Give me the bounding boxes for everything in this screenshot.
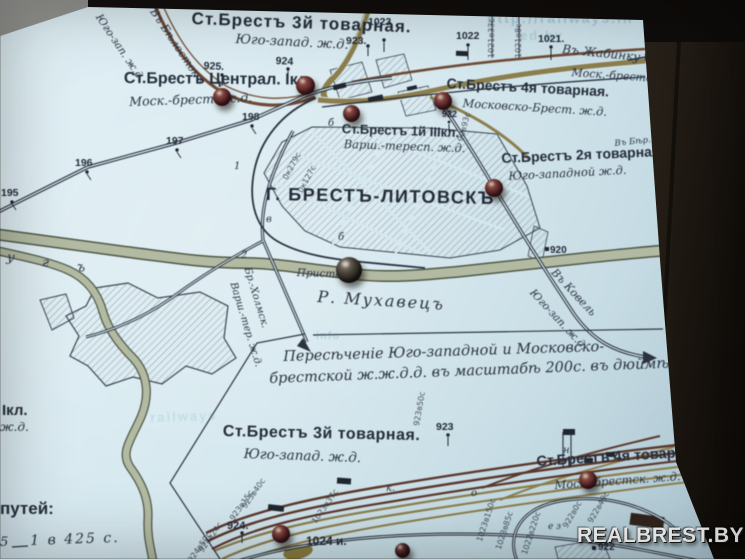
legend-class: Iкл. <box>2 402 28 419</box>
verstpost-922: 922 <box>442 109 457 119</box>
pushpin <box>434 92 452 110</box>
milepost-197: 197 <box>166 135 184 147</box>
verstpost-923-bottom: 923 <box>436 421 454 433</box>
pushpin-large <box>336 257 362 283</box>
verstpost-1021: 1021. <box>538 33 564 45</box>
letter-marker-k: к. <box>386 483 395 494</box>
letter-marker-v: в <box>266 214 272 225</box>
verstpost-920: 920 <box>550 245 567 256</box>
legend-scale: 1 в 425 с. <box>30 530 120 549</box>
verstpost-1022: 1022 <box>456 30 479 42</box>
pushpin <box>343 105 360 122</box>
site-watermark: REALBREST.BY <box>577 524 744 548</box>
verstpost-924-bottom: 924. <box>227 520 248 532</box>
pushpin <box>213 88 231 106</box>
pushpin <box>579 471 597 489</box>
historical-map: http://railways.in ed by info railways С… <box>0 0 745 559</box>
verstpost-1024-bottom: 1024 и. <box>306 534 347 548</box>
letter-marker-b: б <box>328 118 334 129</box>
verstpost-925: 925. <box>203 60 224 73</box>
legend-railway: ж.д. <box>0 420 29 434</box>
letter-marker-b: б <box>338 232 344 243</box>
milepost-198: 198 <box>242 111 260 123</box>
milepost-195: 195 <box>1 187 19 199</box>
tiny-post: 1021в33с <box>487 18 496 58</box>
milepost-196: 196 <box>75 157 93 169</box>
pushpin <box>485 179 503 197</box>
station-central-label: Ст.Брестъ Централ. Iкл. <box>124 70 313 90</box>
legend-putei: путей: <box>0 499 54 519</box>
letter-marker-1: 1 <box>234 161 240 172</box>
letter-marker-2: 2 <box>241 250 247 261</box>
letter-marker-ez: е з <box>548 522 561 532</box>
ghost-watermark: info <box>316 330 340 342</box>
verstpost-923: 923. <box>346 35 366 47</box>
letter-marker-n: н. <box>563 445 573 456</box>
pushpin <box>272 525 290 543</box>
photo-of-projected-map: http://railways.in ed by info railways С… <box>0 0 745 559</box>
legend-five: 5 <box>0 535 8 550</box>
tiny-post: 1021в8с <box>514 23 523 58</box>
letter-marker-o: о <box>471 488 477 499</box>
pushpin <box>296 76 315 95</box>
pushpin <box>395 543 410 558</box>
verstpost-924: 924 <box>275 55 293 68</box>
ghost-watermark: railways <box>150 408 218 425</box>
verstpost-1023: 1023 <box>368 16 391 28</box>
